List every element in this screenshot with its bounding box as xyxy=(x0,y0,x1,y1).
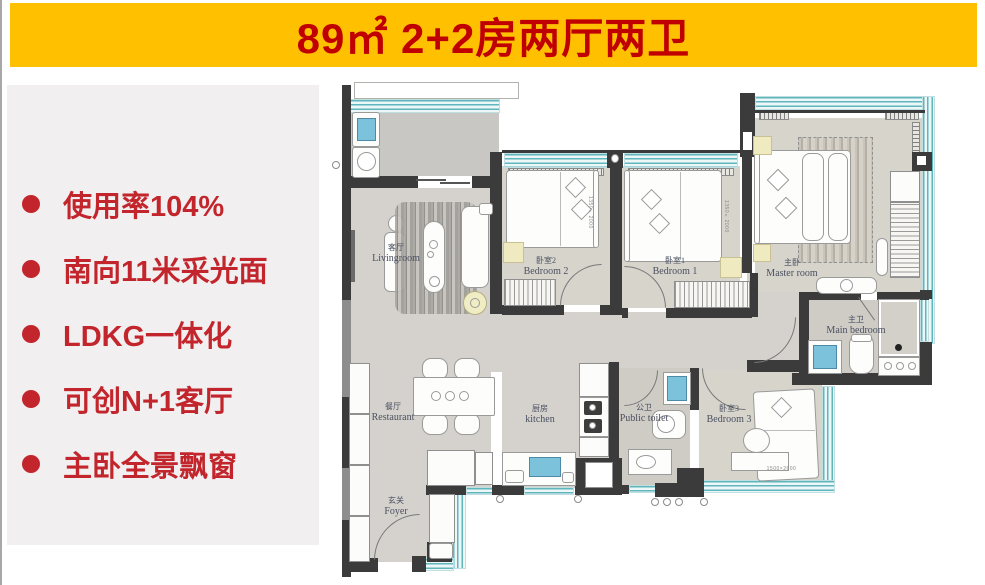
duvet xyxy=(828,153,848,241)
axis-marker xyxy=(496,495,504,503)
bedroom1-window xyxy=(624,153,738,168)
burner-ring xyxy=(589,404,596,411)
wall xyxy=(502,150,612,153)
axis-marker xyxy=(332,161,340,169)
bed-headboard xyxy=(593,170,599,248)
wall xyxy=(492,485,524,495)
duct xyxy=(743,132,752,150)
room-label-dining: 餐厅 Restaurant xyxy=(372,402,415,424)
master-slab-strip xyxy=(752,85,925,96)
bed-fold-line xyxy=(560,172,561,246)
table-decor xyxy=(431,391,441,401)
room-label-kitchen: 厨房 kitchen xyxy=(525,404,554,426)
kitchen-cabinet xyxy=(579,437,609,457)
shower xyxy=(813,345,837,369)
room-label-cn: 公卫 xyxy=(620,403,669,413)
bed-fold-line xyxy=(680,172,681,260)
master-bath-window xyxy=(920,299,929,342)
axis-marker xyxy=(651,498,659,506)
kitchen-sink xyxy=(529,457,561,477)
master-sill-left xyxy=(759,112,789,120)
bedside-rug xyxy=(753,136,772,155)
balcony-sink-basin xyxy=(357,152,376,171)
axis-marker xyxy=(663,498,671,506)
wall xyxy=(622,308,628,318)
counter-item xyxy=(562,472,574,483)
room-label-en: Restaurant xyxy=(372,412,415,424)
bed-dimension: 1500×2600 xyxy=(754,466,809,472)
floor-lamp-inner xyxy=(470,298,480,308)
storage-cabinet xyxy=(349,414,370,465)
floor-plan: 1350×2000 1350×2000 xyxy=(2,0,985,585)
bedroom3-bay-window-right xyxy=(822,386,835,488)
room-label-en: Foyer xyxy=(384,506,407,518)
room-label-foyer: 玄关 Foyer xyxy=(384,496,407,518)
room-label-en: Livingroom xyxy=(372,253,420,265)
room-label-master: 主卧 Master room xyxy=(766,258,817,280)
gas-meter xyxy=(505,470,524,483)
room-label-master-bath: 主卫 Main bedroom xyxy=(826,315,885,337)
dining-chair xyxy=(454,413,480,435)
closet-handle xyxy=(895,344,902,351)
master-bay-window-top xyxy=(755,96,925,110)
wardrobe-cabinet xyxy=(475,452,493,485)
pillar-marker xyxy=(611,154,619,163)
room-label-cn: 餐厅 xyxy=(372,402,415,412)
room-label-en: Bedroom 2 xyxy=(524,266,569,278)
storage-cabinet xyxy=(349,516,370,562)
wardrobe xyxy=(504,279,556,306)
decor-circle xyxy=(427,251,434,258)
bedside-rug xyxy=(720,257,742,278)
balcony-window xyxy=(350,99,500,113)
kitchen-cabinet xyxy=(579,363,609,397)
room-label-living: 客厅 Livingroom xyxy=(372,243,420,265)
room-label-cn: 玄关 xyxy=(384,496,407,506)
poster-page: 89㎡ 2+2房两厅两卫 使用率104% 南向11米采光面 LDKG一体化 可创… xyxy=(0,0,985,585)
wall xyxy=(655,483,700,497)
room-label-cn: 客厅 xyxy=(372,243,420,253)
dresser-mirror xyxy=(840,279,853,292)
wall xyxy=(920,290,932,299)
shower xyxy=(667,376,687,401)
bedroom2-window xyxy=(504,153,608,168)
decor-circle xyxy=(429,240,438,249)
master-wardrobe-top xyxy=(890,171,920,202)
room-label-cn: 卧室3 xyxy=(707,404,752,414)
table-decor xyxy=(445,391,455,401)
bedside-rug xyxy=(503,242,524,263)
room-label-bedroom2: 卧室2 Bedroom 2 xyxy=(524,256,569,278)
wardrobe-cabinet xyxy=(427,450,475,486)
axis-marker xyxy=(675,498,683,506)
vanity-bowl xyxy=(896,362,904,370)
tv-cabinet-box xyxy=(479,203,493,215)
room-label-cn: 卧室2 xyxy=(524,256,569,266)
bed-dimension: 1350×2000 xyxy=(723,200,729,246)
room-label-bedroom1: 卧室1 Bedroom 1 xyxy=(653,256,698,278)
vanity-bowl xyxy=(884,362,892,370)
table-decor xyxy=(459,391,469,401)
bed xyxy=(624,170,722,262)
room-label-en: Bedroom 1 xyxy=(653,266,698,278)
sliding-door xyxy=(440,182,470,184)
wall xyxy=(622,150,740,153)
tv-cabinet xyxy=(461,206,489,288)
foyer-cabinet xyxy=(429,494,455,543)
dining-chair xyxy=(422,413,448,435)
storage-cabinet xyxy=(349,465,370,516)
burner-ring xyxy=(589,422,596,429)
room-label-cn: 厨房 xyxy=(525,404,554,414)
room-label-cn: 主卫 xyxy=(826,315,885,325)
wall xyxy=(742,157,752,273)
washing-machine-drum xyxy=(357,118,376,141)
room-label-en: Main bedroom xyxy=(826,325,885,337)
wall xyxy=(755,110,925,113)
axis-marker xyxy=(700,498,708,506)
wall xyxy=(600,305,622,315)
room-label-en: Bedroom 3 xyxy=(707,414,752,426)
basin-bowl xyxy=(636,455,656,469)
room-label-en: Public toilet xyxy=(620,413,669,425)
wall xyxy=(920,342,932,376)
bed-headboard xyxy=(624,170,630,262)
wall xyxy=(502,305,564,315)
bed-bench xyxy=(876,238,888,276)
axis-marker xyxy=(574,495,582,503)
wall xyxy=(666,308,752,318)
room-label-cn: 主卧 xyxy=(766,258,817,268)
room-label-public-toilet: 公卫 Public toilet xyxy=(620,403,669,425)
room-label-en: kitchen xyxy=(525,414,554,426)
master-sill-right xyxy=(885,112,919,120)
kitchen-window xyxy=(524,487,574,495)
wall xyxy=(609,362,619,460)
toilet-window xyxy=(629,485,656,493)
slab-outline xyxy=(354,82,519,99)
wall xyxy=(619,485,629,494)
bedroom3-bay-window-bottom xyxy=(699,480,835,493)
desk-chair xyxy=(743,428,770,453)
wall xyxy=(610,152,622,312)
room-label-cn: 卧室1 xyxy=(653,256,698,266)
service-door xyxy=(585,462,613,488)
storage-cabinet xyxy=(349,363,370,414)
room-label-bedroom3: 卧室3 Bedroom 3 xyxy=(707,404,752,426)
master-wardrobe xyxy=(890,202,920,278)
wall xyxy=(490,152,502,314)
wardrobe xyxy=(674,281,750,308)
tv xyxy=(351,230,355,282)
room-label-en: Master room xyxy=(766,268,817,280)
decor-circle xyxy=(429,276,440,287)
vanity-bowl xyxy=(908,362,916,370)
sliding-door xyxy=(416,179,446,181)
foyer-bench xyxy=(429,543,453,559)
bed-dimension: 1350×2000 xyxy=(587,196,593,242)
dining-window xyxy=(466,487,494,495)
duvet xyxy=(802,153,824,241)
wall xyxy=(690,368,699,410)
ac-box-inner xyxy=(917,156,926,165)
bed-headboard xyxy=(754,150,760,244)
